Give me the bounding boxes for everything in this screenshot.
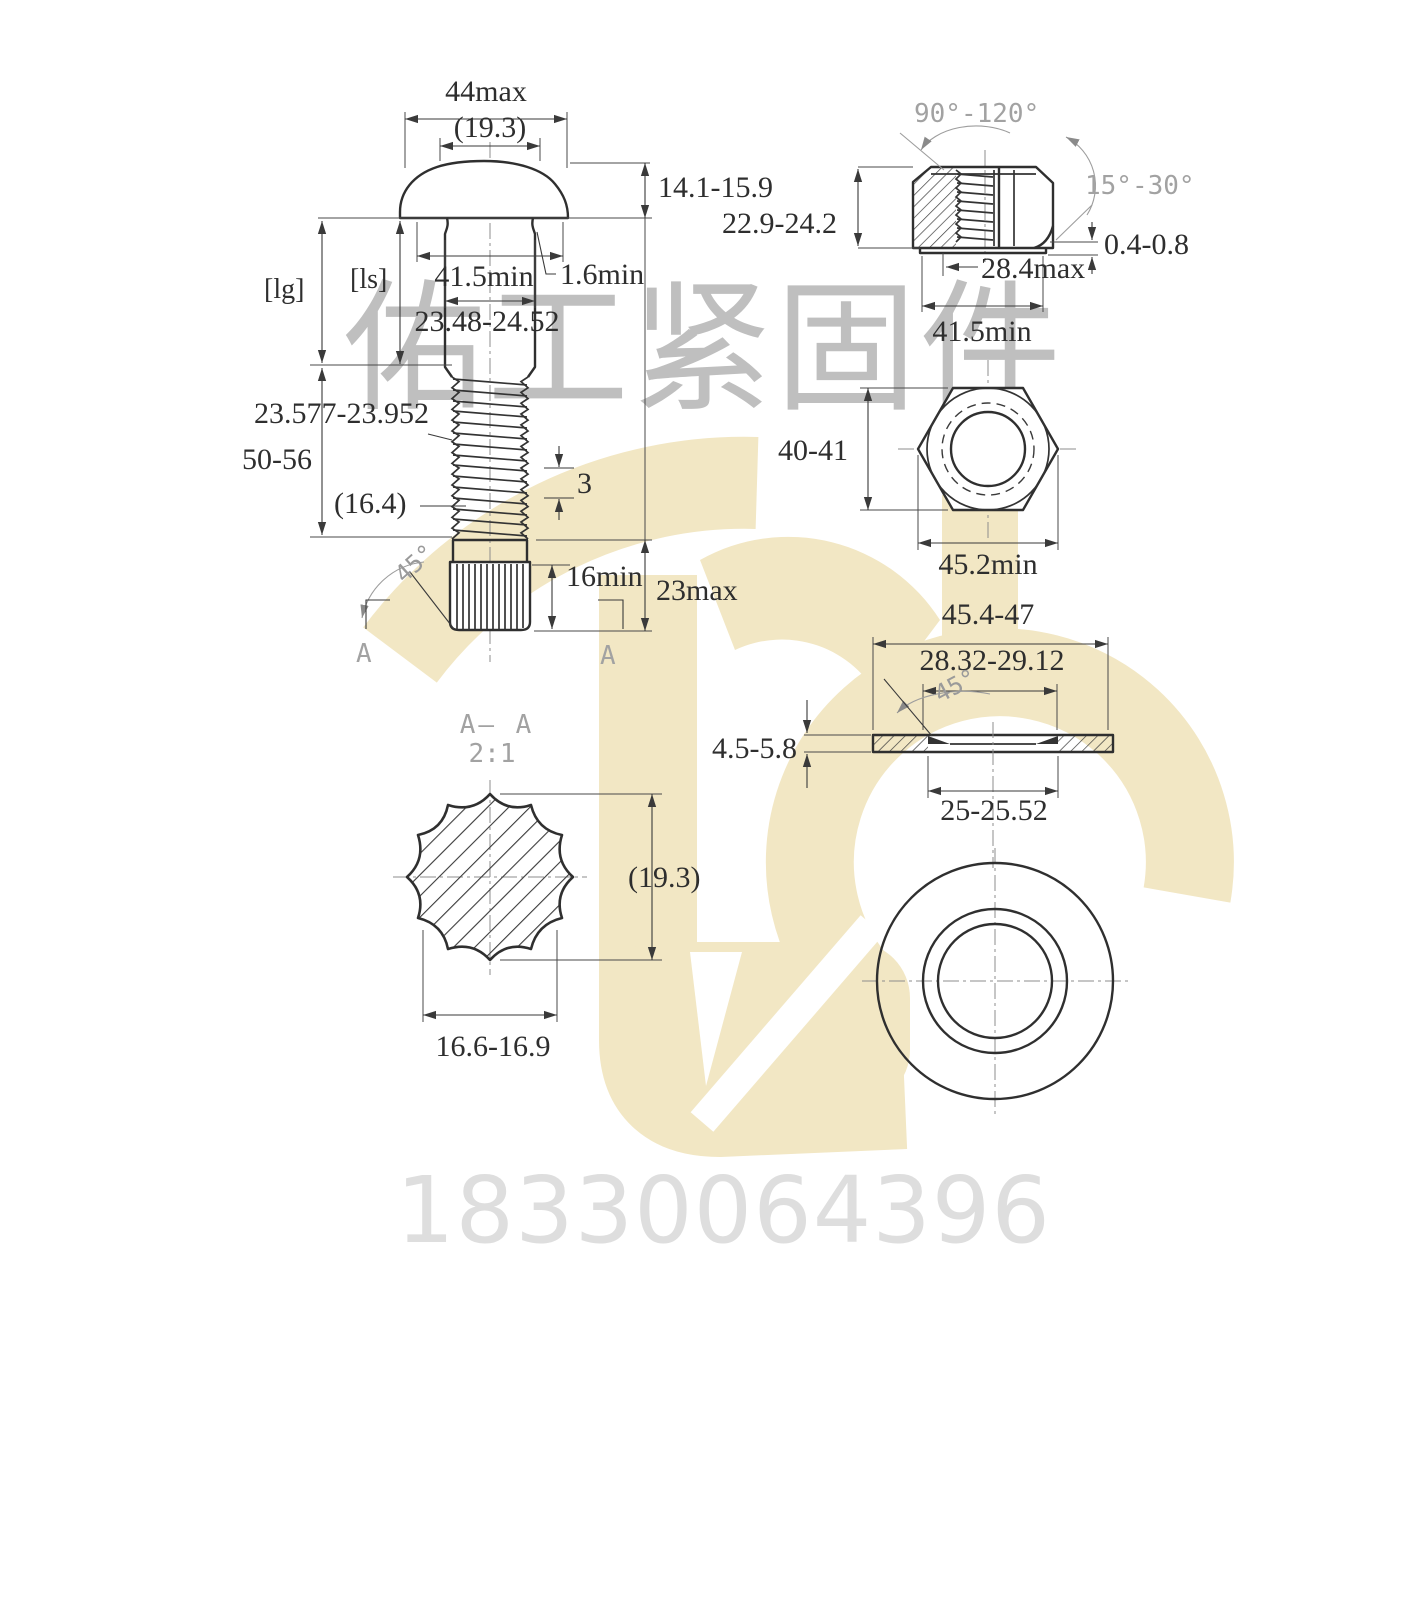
bolt-head-outline [400,161,568,218]
drawing-canvas: 佑工紧固件 18330064396 [0,0,1416,1600]
bolt-tip-length-label: 23max [656,574,738,607]
washer-outer-circle [877,863,1113,1099]
nut-top-angle-label: 90°-120° [914,99,1039,129]
washer-outer-dia-label: 45.4-47 [942,598,1035,631]
spline-across-flats-label: 16.6-16.9 [436,1030,551,1063]
nut-bearing-dia-label: 41.5min [932,315,1031,348]
bolt-shank-length-label: [ls] [350,264,387,295]
section-mark-a-left: A [356,639,372,669]
nut-washer-angle-label: 15°-30° [1085,171,1195,201]
washer-hatch-right [1058,735,1113,752]
bolt-pitch-label: 3 [577,467,592,500]
nut-height-label: 22.9-24.2 [722,207,837,240]
washer-hole-dia-label: 25-25.52 [940,794,1048,827]
bolt-head-dia-ref-label: (19.3) [454,111,526,144]
section-mark-a-right: A [600,641,616,671]
washer-chamfer-dia-label: 28.32-29.12 [920,644,1065,677]
bolt-thread-dia-label: 23.577-23.952 [254,397,429,430]
bolt-spline-outline [450,562,530,630]
nut-thread-lines [957,174,993,240]
washer-chamfer-right [1036,736,1058,744]
nut-across-corners-label: 45.2min [938,548,1037,581]
bolt-thread-ref-label: (16.4) [334,487,406,520]
bolt-spline-length-label: 16min [566,560,643,593]
washer-thickness-label: 4.5-5.8 [712,732,797,765]
bolt-grip-label: [lg] [264,274,304,305]
washer-hatch-left [873,735,928,752]
bolt-bearing-dia-label: 41.5min [434,260,533,293]
nut-across-flats-label: 40-41 [778,434,848,467]
section-scale: 2:1 [469,739,516,769]
nut-bore-label: 28.4max [981,252,1085,285]
bolt-thread-length-label: 50-56 [242,443,312,476]
bolt-head-width-label: 44max [445,75,527,108]
spline-dia-ref-label: (19.3) [628,861,700,894]
bolt-fillet-label: 1.6min [560,258,644,291]
section-title: A— A [460,710,535,740]
bolt-head-height-label: 14.1-15.9 [658,171,773,204]
nut-thread-left-edge [956,170,961,242]
watermark-phone-text: 18330064396 [396,1157,1051,1264]
washer-chamfer-left [928,736,950,744]
nut-section-hatch [913,167,956,248]
bolt-shank-dia-label: 23.48-24.52 [415,305,560,338]
technical-drawing-page: 佑工紧固件 18330064396 [0,0,1416,1600]
nut-face-height-label: 0.4-0.8 [1104,228,1189,261]
spline-section-outline [407,794,573,960]
